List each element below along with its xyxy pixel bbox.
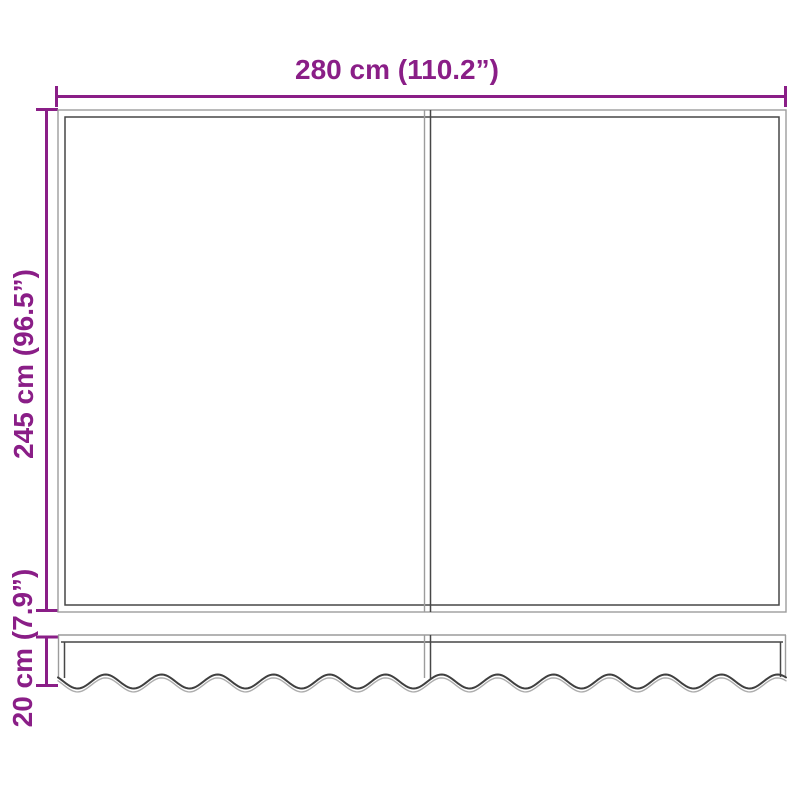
height-dimension: [36, 108, 58, 612]
valance-dimension: [36, 636, 58, 687]
valance-wave-edge-dark: [58, 675, 786, 689]
main-panel-inner-outline: [65, 117, 779, 605]
diagram-graphic: 280 cm (110.2”) 245 cm (96.5”) 20 cm (7.…: [0, 0, 800, 800]
valance-strip: [58, 635, 786, 692]
valance-dimension-label: 20 cm (7.9”): [7, 569, 38, 728]
dimension-diagram: 280 cm (110.2”) 245 cm (96.5”) 20 cm (7.…: [0, 0, 800, 800]
width-dimension: [55, 86, 787, 107]
width-dimension-label: 280 cm (110.2”): [295, 54, 499, 85]
main-panel: [58, 110, 786, 612]
height-dimension-label: 245 cm (96.5”): [8, 269, 39, 459]
main-panel-outer-outline: [58, 110, 786, 612]
